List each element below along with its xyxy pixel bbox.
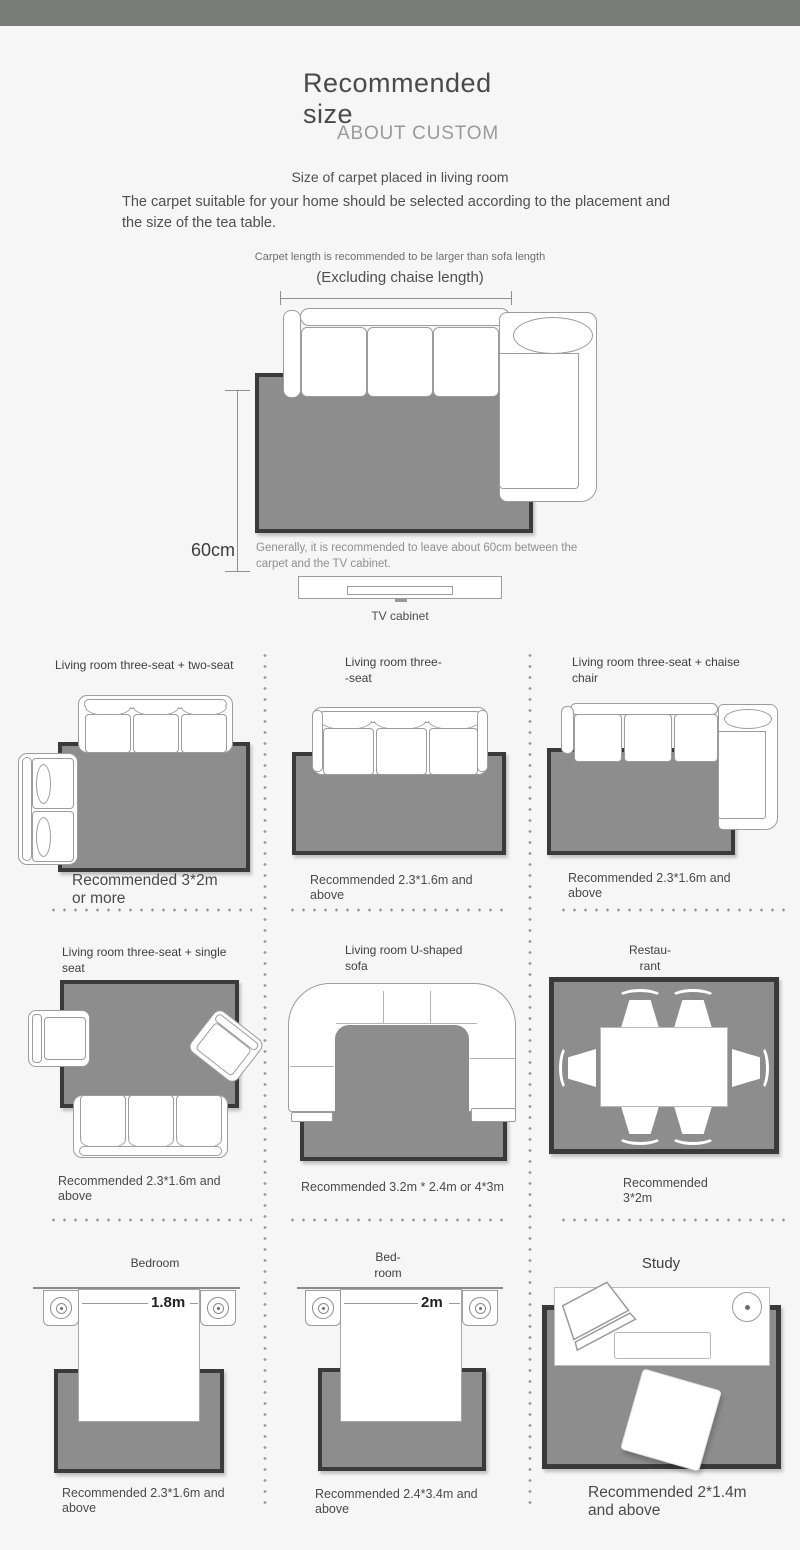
bed-dim-line: [344, 1303, 418, 1304]
cushion-divider: [336, 1023, 477, 1024]
cell-title: Living room three-seat + chaise chair: [572, 655, 772, 686]
cell-title: Restau- rant: [555, 943, 745, 974]
sofa-arm: [312, 710, 323, 772]
cell-title: Living room U-shaped sofa: [345, 943, 505, 974]
bed-dim-label: 1.8m: [151, 1294, 185, 1311]
chaise-pillow: [724, 709, 772, 729]
section-title: Size of carpet placed in living room: [100, 169, 700, 185]
hero-sofa-cushion: [301, 327, 367, 397]
sofa-pillow: [36, 764, 51, 804]
grid-separator-vertical: [528, 650, 532, 1505]
tv-cabinet-label: TV cabinet: [300, 609, 500, 623]
cushion-divider: [470, 1058, 515, 1059]
cell-caption: Recommended 2.4*3.4m and above: [315, 1487, 515, 1517]
armchair-cushion: [44, 1017, 86, 1060]
bed-dim-line: [190, 1303, 198, 1304]
page-title: Recommended size: [303, 68, 483, 131]
tv-stand: [395, 598, 407, 602]
sofa-arm: [477, 710, 488, 772]
armchair-back: [32, 1014, 42, 1063]
gap-dimension-line: [237, 390, 238, 572]
sofa-pillow: [36, 817, 51, 857]
keyboard-tray: [614, 1332, 711, 1359]
gap-note: Generally, it is recommended to leave ab…: [256, 541, 612, 572]
carpet: [58, 742, 250, 872]
hero-note-small: Carpet length is recommended to be large…: [150, 251, 650, 263]
grid-separator-horizontal: [287, 908, 508, 912]
sofa-base: [291, 1112, 333, 1122]
lamp-icon: [207, 1297, 229, 1319]
cell-caption: Recommended 2.3*1.6m and above: [310, 873, 510, 903]
cell-caption: Recommended 2.3*1.6m and above: [62, 1486, 262, 1516]
bed-dim-line: [449, 1303, 460, 1304]
grid-separator-vertical: [263, 650, 267, 1505]
bed: [340, 1289, 462, 1422]
sofa-cushion: [176, 1095, 222, 1142]
lamp-icon: [312, 1297, 334, 1319]
infographic-page: Recommended size ABOUT CUSTOM Size of ca…: [0, 0, 800, 1550]
bed-dim-line: [82, 1303, 148, 1304]
section-description: The carpet suitable for your home should…: [122, 192, 682, 234]
cushion-divider: [290, 1066, 334, 1067]
sofa-cushion: [80, 1095, 126, 1142]
gap-dimension-tick-bottom: [225, 571, 250, 572]
sofa-back: [22, 757, 32, 861]
sofa-u-opening: [335, 1025, 469, 1112]
hero-sofa-cushion: [367, 327, 433, 397]
dimension-tick-left: [280, 291, 281, 305]
hero-sofa-left-arm: [283, 310, 301, 398]
cell-title: Bedroom: [55, 1256, 255, 1272]
sofa-cushion: [181, 714, 227, 753]
page-subtitle: ABOUT CUSTOM: [337, 123, 499, 145]
gap-dimension-tick-top: [225, 390, 250, 391]
hero-sofa-back: [300, 308, 510, 326]
sofa-cushion: [429, 728, 478, 775]
chair-back-icon: [617, 1127, 663, 1145]
grid-separator-horizontal: [48, 908, 252, 912]
cell-title: Living room three-seat + two-seat: [55, 658, 265, 674]
chair-back-icon: [751, 1045, 769, 1091]
cell-title: Living room three-seat + single seat: [62, 945, 262, 976]
top-bar: [0, 0, 800, 26]
sofa-cushion: [624, 714, 672, 762]
cushion-divider: [430, 991, 431, 1024]
hero-chaise-seat: [499, 353, 579, 489]
cell-title: Living room three- -seat: [345, 655, 515, 686]
cell-caption: Recommended 3*2m or more: [72, 872, 262, 908]
cell-caption: Recommended 2*1.4m and above: [588, 1484, 788, 1520]
sofa-cushion: [674, 714, 718, 762]
cell-caption: Recommended 3.2m * 2.4m or 4*3m: [301, 1180, 521, 1195]
dimension-tick-right: [511, 291, 512, 305]
cell-caption: Recommended 2.3*1.6m and above: [58, 1174, 258, 1204]
lamp-icon: [50, 1297, 72, 1319]
tv-icon: [347, 586, 453, 595]
sofa-cushion: [323, 728, 374, 775]
hero-note-exclude: (Excluding chaise length): [150, 269, 650, 286]
carpet: [547, 748, 735, 855]
sofa-arm: [561, 706, 574, 754]
cell-title: Bed- room: [288, 1250, 488, 1281]
cell-title: Study: [561, 1254, 761, 1274]
sofa-back: [79, 1146, 222, 1156]
sofa-base: [471, 1108, 516, 1122]
chaise-seat: [718, 731, 766, 819]
sofa-cushion: [133, 714, 179, 753]
desk-lamp-icon: [732, 1292, 762, 1322]
sofa-cushion: [128, 1095, 174, 1142]
hero-chaise-pillow: [513, 317, 593, 354]
chair-back-icon: [670, 1127, 716, 1145]
grid-separator-horizontal: [48, 1218, 252, 1222]
grid-separator-horizontal: [558, 1218, 790, 1222]
bed-dim-label: 2m: [421, 1294, 443, 1311]
cushion-divider: [383, 991, 384, 1024]
grid-separator-horizontal: [558, 908, 790, 912]
sofa-cushion: [85, 714, 131, 753]
cell-caption: Recommended 2.3*1.6m and above: [568, 871, 768, 901]
sofa-cushion: [574, 714, 622, 762]
sofa-cushion: [376, 728, 427, 775]
lamp-icon: [469, 1297, 491, 1319]
dining-table: [600, 1027, 728, 1107]
dimension-line-horizontal: [280, 298, 512, 299]
gap-label: 60cm: [191, 540, 235, 561]
grid-separator-horizontal: [287, 1218, 508, 1222]
cell-caption: Recommended 3*2m: [623, 1176, 773, 1206]
hero-sofa-cushion: [433, 327, 499, 397]
